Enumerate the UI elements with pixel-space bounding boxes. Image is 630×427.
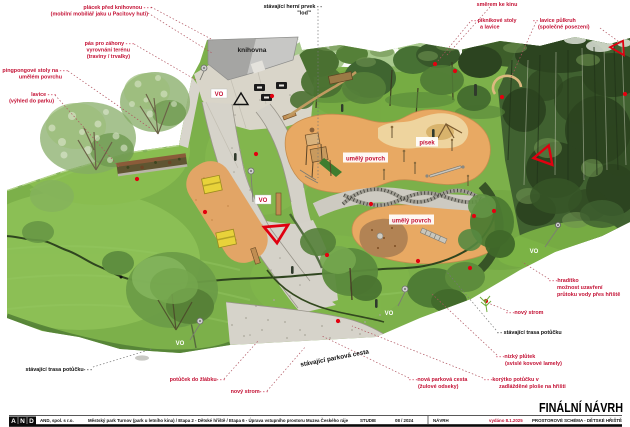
svg-text:(výhled do parku): (výhled do parku) <box>9 99 54 105</box>
svg-text:STUDIE: STUDIE <box>360 418 376 423</box>
svg-text:- - -nízký plůtek: - - -nízký plůtek <box>496 353 535 360</box>
svg-text:(svislé kovové lamely): (svislé kovové lamely) <box>505 361 562 367</box>
svg-text:plácek před knihovnou - - -: plácek před knihovnou - - - <box>83 5 152 11</box>
svg-text:pás pro záhony - - -: pás pro záhony - - - <box>85 41 135 47</box>
svg-text:lavice - - -: lavice - - - <box>31 92 56 98</box>
svg-text:průtoku vody přes hřiště: průtoku vody přes hřiště <box>557 291 620 298</box>
svg-text:stávající trasa potůčku- - -: stávající trasa potůčku- - - <box>25 366 92 373</box>
svg-text:vydáno 8.1.2025: vydáno 8.1.2025 <box>489 418 523 423</box>
svg-text:D: D <box>29 418 34 425</box>
svg-text:(žulové odseky): (žulové odseky) <box>418 384 459 390</box>
svg-text:- - -nový strom: - - -nový strom <box>506 310 544 316</box>
svg-text:NÁVRH: NÁVRH <box>433 418 449 423</box>
svg-text:potůček do žlábku- - -: potůček do žlábku- - - <box>170 376 226 383</box>
svg-text:pingpongové stoly na - - -: pingpongové stoly na - - - <box>2 68 68 74</box>
svg-text:umělý povrch: umělý povrch <box>346 157 385 163</box>
svg-text:"loď": "loď" <box>297 11 311 17</box>
svg-text:možnost uzavření: možnost uzavření <box>557 285 603 291</box>
svg-text:umělý povrch: umělý povrch <box>392 219 431 225</box>
svg-text:AND, spol. s r.o.: AND, spol. s r.o. <box>40 418 74 423</box>
svg-text:- - -hradítko: - - -hradítko <box>549 278 579 284</box>
svg-text:VO: VO <box>259 198 268 204</box>
svg-text:- - -korýtko potůčku v: - - -korýtko potůčku v <box>484 376 539 383</box>
svg-text:(traviny / trvalky): (traviny / trvalky) <box>87 54 130 60</box>
svg-text:VO: VO <box>176 341 185 347</box>
svg-text:umělém povrchu: umělém povrchu <box>19 75 62 81</box>
svg-text:písek: písek <box>419 141 435 147</box>
svg-text:N: N <box>20 418 25 425</box>
svg-text:A: A <box>11 418 16 425</box>
svg-text:PROSTOROVÉ SCHÉMA - DĚTSKÉ HŘI: PROSTOROVÉ SCHÉMA - DĚTSKÉ HŘIŠTĚ <box>532 418 622 423</box>
svg-text:VO: VO <box>385 311 394 317</box>
svg-text:VO: VO <box>215 92 224 98</box>
svg-text:zadlážděné ploše na hřišti: zadlážděné ploše na hřišti <box>499 384 566 390</box>
svg-text:vyrovnání terénu: vyrovnání terénu <box>87 48 130 54</box>
svg-text:VO: VO <box>530 249 539 255</box>
svg-text:- - piknikové stoly: - - piknikové stoly <box>471 18 517 24</box>
svg-text:knihovna: knihovna <box>238 47 267 54</box>
svg-text:stávající herní prvek - -: stávající herní prvek - - <box>264 4 323 10</box>
svg-text:- - stávající trasa potůčku: - - stávající trasa potůčku <box>497 329 562 336</box>
svg-text:Městský park Turnov (park u le: Městský park Turnov (park u letního kina… <box>88 418 349 423</box>
svg-text:směrem ke kinu: směrem ke kinu <box>477 2 518 8</box>
svg-text:FINÁLNÍ NÁVRH: FINÁLNÍ NÁVRH <box>539 400 623 415</box>
svg-text:(mobilní mobiliář jaku u Pacit: (mobilní mobiliář jaku u Pacitovy huti) <box>51 12 149 18</box>
svg-text:(společné posezení): (společné posezení) <box>538 25 590 31</box>
svg-text:- - -nová parková cesta: - - -nová parková cesta <box>409 377 468 383</box>
svg-text:- - lavice půlkruh: - - lavice půlkruh <box>533 17 576 24</box>
svg-text:08 / 2024: 08 / 2024 <box>395 418 414 423</box>
svg-text:a lavice: a lavice <box>480 25 499 31</box>
svg-text:nový strom- - -: nový strom- - - <box>231 389 269 395</box>
